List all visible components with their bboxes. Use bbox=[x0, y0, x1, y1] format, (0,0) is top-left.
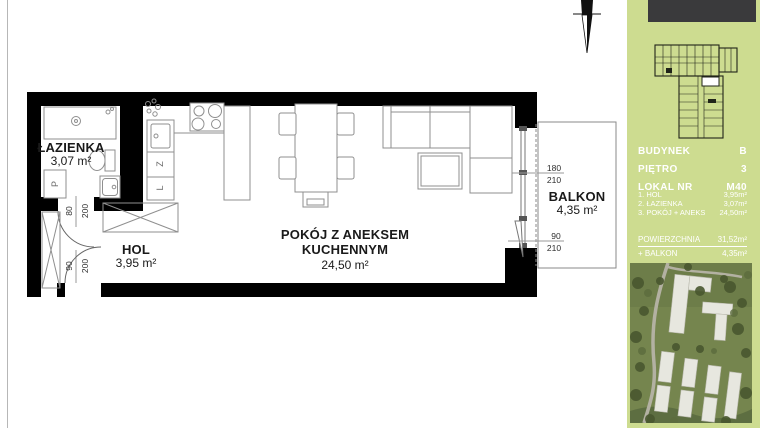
dim-bath-door-width: 80 bbox=[64, 199, 74, 223]
chair bbox=[279, 113, 296, 135]
balcony-area-row: + BALKON 4,35m² bbox=[638, 249, 747, 259]
room-area-hall: 3,95 m² bbox=[86, 256, 186, 270]
room-area-balcony: 4,35 m² bbox=[527, 203, 627, 217]
room-list-value: 24,50m² bbox=[719, 209, 747, 218]
total-area-value: 31,52m² bbox=[718, 235, 747, 245]
dim-entry-door-width: 90 bbox=[64, 254, 74, 278]
info-value: 3 bbox=[741, 164, 747, 175]
room-area-living: 24,50 m² bbox=[245, 258, 445, 272]
dim-window-height: 210 bbox=[539, 175, 569, 185]
info-label: BUDYNEK bbox=[638, 146, 690, 157]
area-summary: POWIERZCHNIA 31,52m² + BALKON 4,35m² bbox=[638, 235, 747, 259]
info-row-floor: PIĘTRO 3 bbox=[638, 164, 747, 175]
aerial-photo bbox=[630, 263, 752, 423]
wardrobe bbox=[42, 212, 60, 288]
kitchen-sink-unit bbox=[147, 120, 174, 152]
total-area-label: POWIERZCHNIA bbox=[638, 235, 700, 245]
balcony-area-label: + BALKON bbox=[638, 249, 677, 259]
info-value: B bbox=[739, 146, 747, 157]
dim-entry-door-height: 200 bbox=[80, 254, 90, 278]
dim-balcony-door-height: 210 bbox=[539, 243, 569, 253]
room-list: 1. HOL 3,95m² 2. ŁAZIENKA 3,07m² 3. POKÓ… bbox=[638, 191, 747, 217]
info-sidebar: BUDYNEK B PIĘTRO 3 LOKAL NR M40 1. HOL 3… bbox=[627, 0, 760, 428]
washer-letter: P bbox=[49, 174, 61, 194]
logo-bar bbox=[648, 0, 756, 22]
room-list-item: 3. POKÓJ + ANEKS 24,50m² bbox=[638, 209, 747, 218]
chair bbox=[303, 192, 328, 207]
dim-bath-door-height: 200 bbox=[80, 199, 90, 223]
north-arrow-icon bbox=[573, 0, 601, 53]
room-list-label: 3. POKÓJ + ANEKS bbox=[638, 209, 705, 218]
stove bbox=[190, 103, 224, 131]
dim-balcony-door-width: 90 bbox=[541, 231, 571, 241]
living-furniture bbox=[383, 106, 512, 193]
floor-plan-page: ŁAZIENKA 3,07 m² HOL 3,95 m² POKÓJ Z ANE… bbox=[0, 0, 760, 428]
room-label-living-line2: KUCHENNYM bbox=[245, 242, 445, 257]
chair bbox=[279, 157, 296, 179]
balcony-area-value: 4,35m² bbox=[722, 249, 747, 259]
highlighted-unit bbox=[702, 77, 719, 86]
total-area-row: POWIERZCHNIA 31,52m² bbox=[638, 235, 747, 247]
room-label-bathroom: ŁAZIENKA bbox=[21, 140, 121, 155]
chair bbox=[337, 157, 354, 179]
dining-table bbox=[295, 104, 337, 192]
chair bbox=[337, 113, 354, 135]
dining-set bbox=[279, 104, 354, 207]
room-label-hall: HOL bbox=[86, 242, 186, 257]
room-label-living-line1: POKÓJ Z ANEKSEM bbox=[245, 227, 445, 242]
key-plan bbox=[650, 42, 745, 140]
info-row-building: BUDYNEK B bbox=[638, 146, 747, 157]
dishwasher-letter: Z bbox=[154, 154, 166, 174]
room-area-bathroom: 3,07 m² bbox=[21, 154, 121, 168]
bathroom-sink bbox=[100, 176, 120, 198]
room-label-balcony: BALKON bbox=[527, 189, 627, 204]
shower bbox=[44, 107, 116, 139]
coffee-table bbox=[418, 153, 462, 189]
fridge-letter: L bbox=[154, 178, 166, 198]
info-label: PIĘTRO bbox=[638, 164, 678, 175]
dim-window-width: 180 bbox=[539, 163, 569, 173]
